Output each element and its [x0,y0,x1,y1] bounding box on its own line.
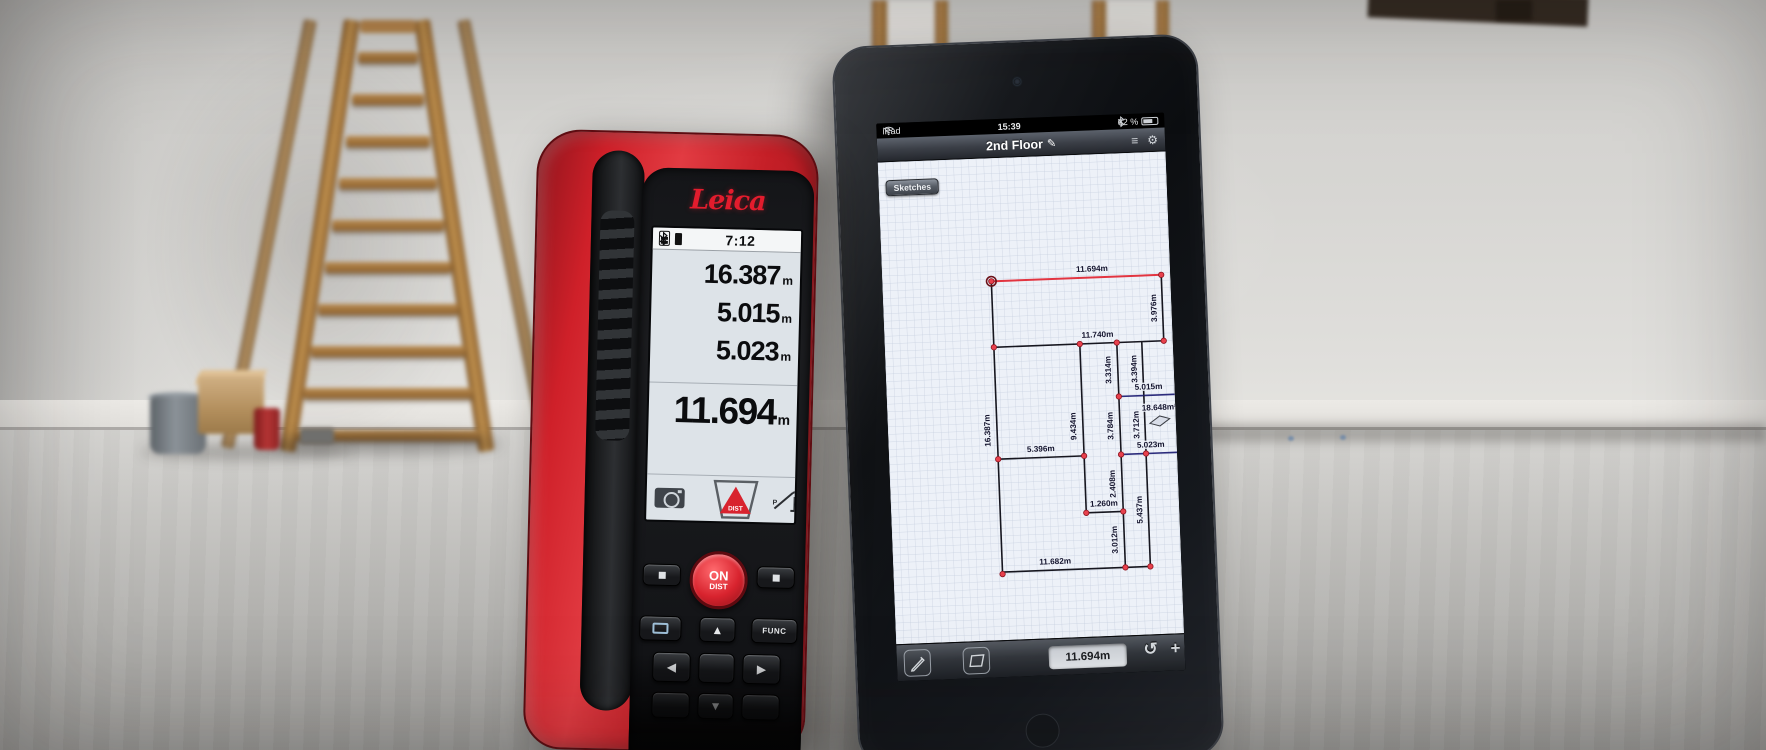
measurement-label: 5.023m [1137,440,1165,450]
red-container [254,408,280,450]
camera-icon [654,487,684,508]
on-dist-button[interactable]: ON DIST [689,551,748,610]
vertex-point[interactable] [1143,451,1149,457]
keypad-button[interactable] [651,692,690,719]
left-trigger-button[interactable] [642,563,681,586]
vertex-point[interactable] [1148,564,1154,570]
edit-icon[interactable]: ✎ [1047,137,1057,150]
camera-button[interactable] [639,615,682,641]
measurement-list: 16.387m 5.015m 5.023m 11.694m [647,249,800,477]
gear-icon[interactable]: ⚙ [1147,133,1158,147]
page-title: 2nd Floor [986,137,1043,153]
measurement-label: 11.740m [1081,330,1113,340]
measurement-label: 3.394m [1129,355,1139,383]
camera-icon [652,623,668,634]
down-arrow-button[interactable]: ▼ [697,693,734,720]
floor-marker [1340,435,1346,440]
ipad-screen: iPad 15:39 62 % 2nd Floor [876,113,1185,682]
measurement-row: 5.015m [659,296,792,337]
vertex-point[interactable] [1120,509,1126,515]
undo-button[interactable]: ↺ [1143,639,1158,660]
vertex-point[interactable] [1116,394,1122,400]
vertex-point[interactable] [1083,510,1089,516]
polygon-icon [967,653,986,669]
leica-disto-device: Leica 7:12 16.387m 5.015m [522,129,819,750]
ceiling-beam [1496,0,1532,20]
left-arrow-button[interactable]: ◀ [652,652,691,683]
measurement-label: 3.314m [1103,356,1113,384]
measurement-label: 11.694m [1076,264,1108,274]
measurement-label: 5.437m [1135,496,1145,524]
func-button[interactable]: FUNC [751,618,798,644]
device-face: Leica 7:12 16.387m 5.015m [628,167,814,750]
shape-tool-button[interactable] [962,647,990,675]
menu-icon[interactable]: ≡ [1131,134,1139,148]
disto-screen: 7:12 16.387m 5.015m 5.023m 11.694m [644,225,803,525]
softkey-row: DIST P P [646,473,795,523]
scene: iPad 15:39 62 % 2nd Floor [0,0,1766,750]
battery-icon [1141,116,1158,125]
wifi-icon [882,126,894,135]
bluetooth-icon [659,231,668,245]
dist-icon: DIST [707,478,764,519]
measurement-label: 3.712m [1131,411,1141,439]
vertex-point[interactable] [989,279,995,285]
measurement-row: 16.387m [660,258,793,299]
up-arrow-button[interactable]: ▲ [699,617,736,643]
center-button[interactable] [698,653,735,684]
svg-text:P: P [796,490,801,497]
vertex-point[interactable] [1000,571,1006,577]
measurement-label: 3.976m [1149,294,1159,322]
right-trigger-button[interactable] [756,566,795,589]
measurement-row: 5.023m [658,334,791,375]
svg-text:P: P [772,499,777,506]
measurement-label: 16.387m [982,414,992,447]
floor-shadow [1200,424,1766,442]
level-icon [675,233,682,245]
vertex-point[interactable] [1077,341,1083,347]
draw-tool-button[interactable] [903,649,931,677]
disto-time: 7:12 [686,231,795,250]
sketch-canvas[interactable]: 11.694m3.976m11.740m16.387m9.434m3.314m3… [878,152,1184,645]
measurement-label: 11.682m [1039,556,1071,566]
divider [649,381,797,386]
measurement-label: 1.260m [1090,499,1118,509]
pencil-icon [909,655,926,672]
area-label: 18.648m² [1142,402,1178,412]
measurement-label: 5.396m [1027,444,1055,454]
keypad-button[interactable] [741,694,780,721]
vertex-point[interactable] [1118,452,1124,458]
right-arrow-button[interactable]: ▶ [742,654,781,685]
measurement-label: 2.408m [1108,470,1118,498]
leica-logo: Leica [650,183,807,218]
vertex-point[interactable] [991,344,997,350]
bluetooth-icon [1118,116,1125,127]
vertex-point[interactable] [1158,272,1164,278]
vertex-point[interactable] [1161,338,1167,344]
camera-softkey[interactable] [654,487,684,508]
measurement-readout: 11.694m [1048,643,1127,669]
floor-object [300,428,334,444]
measurement-label: 9.434m [1068,412,1078,440]
vertex-point[interactable] [1081,453,1087,459]
measurement-label: 3.012m [1110,526,1120,554]
ladder [252,14,522,464]
back-button-sketches[interactable]: Sketches [885,178,939,196]
measurement-label: 3.784m [1105,412,1115,440]
function-icon: P P [770,486,803,515]
floor-marker [1288,436,1294,441]
floor-plan: 11.694m3.976m11.740m16.387m9.434m3.314m3… [878,152,1184,645]
ipad-tablet: iPad 15:39 62 % 2nd Floor [831,33,1225,750]
svg-text:DIST: DIST [728,505,743,512]
main-measurement: 11.694m [656,389,789,448]
vertex-point[interactable] [995,456,1001,462]
vertex-point[interactable] [1114,340,1120,346]
measurement-label: 5.015m [1134,382,1162,392]
vertex-point[interactable] [1123,565,1129,571]
add-button[interactable]: + [1170,638,1181,658]
